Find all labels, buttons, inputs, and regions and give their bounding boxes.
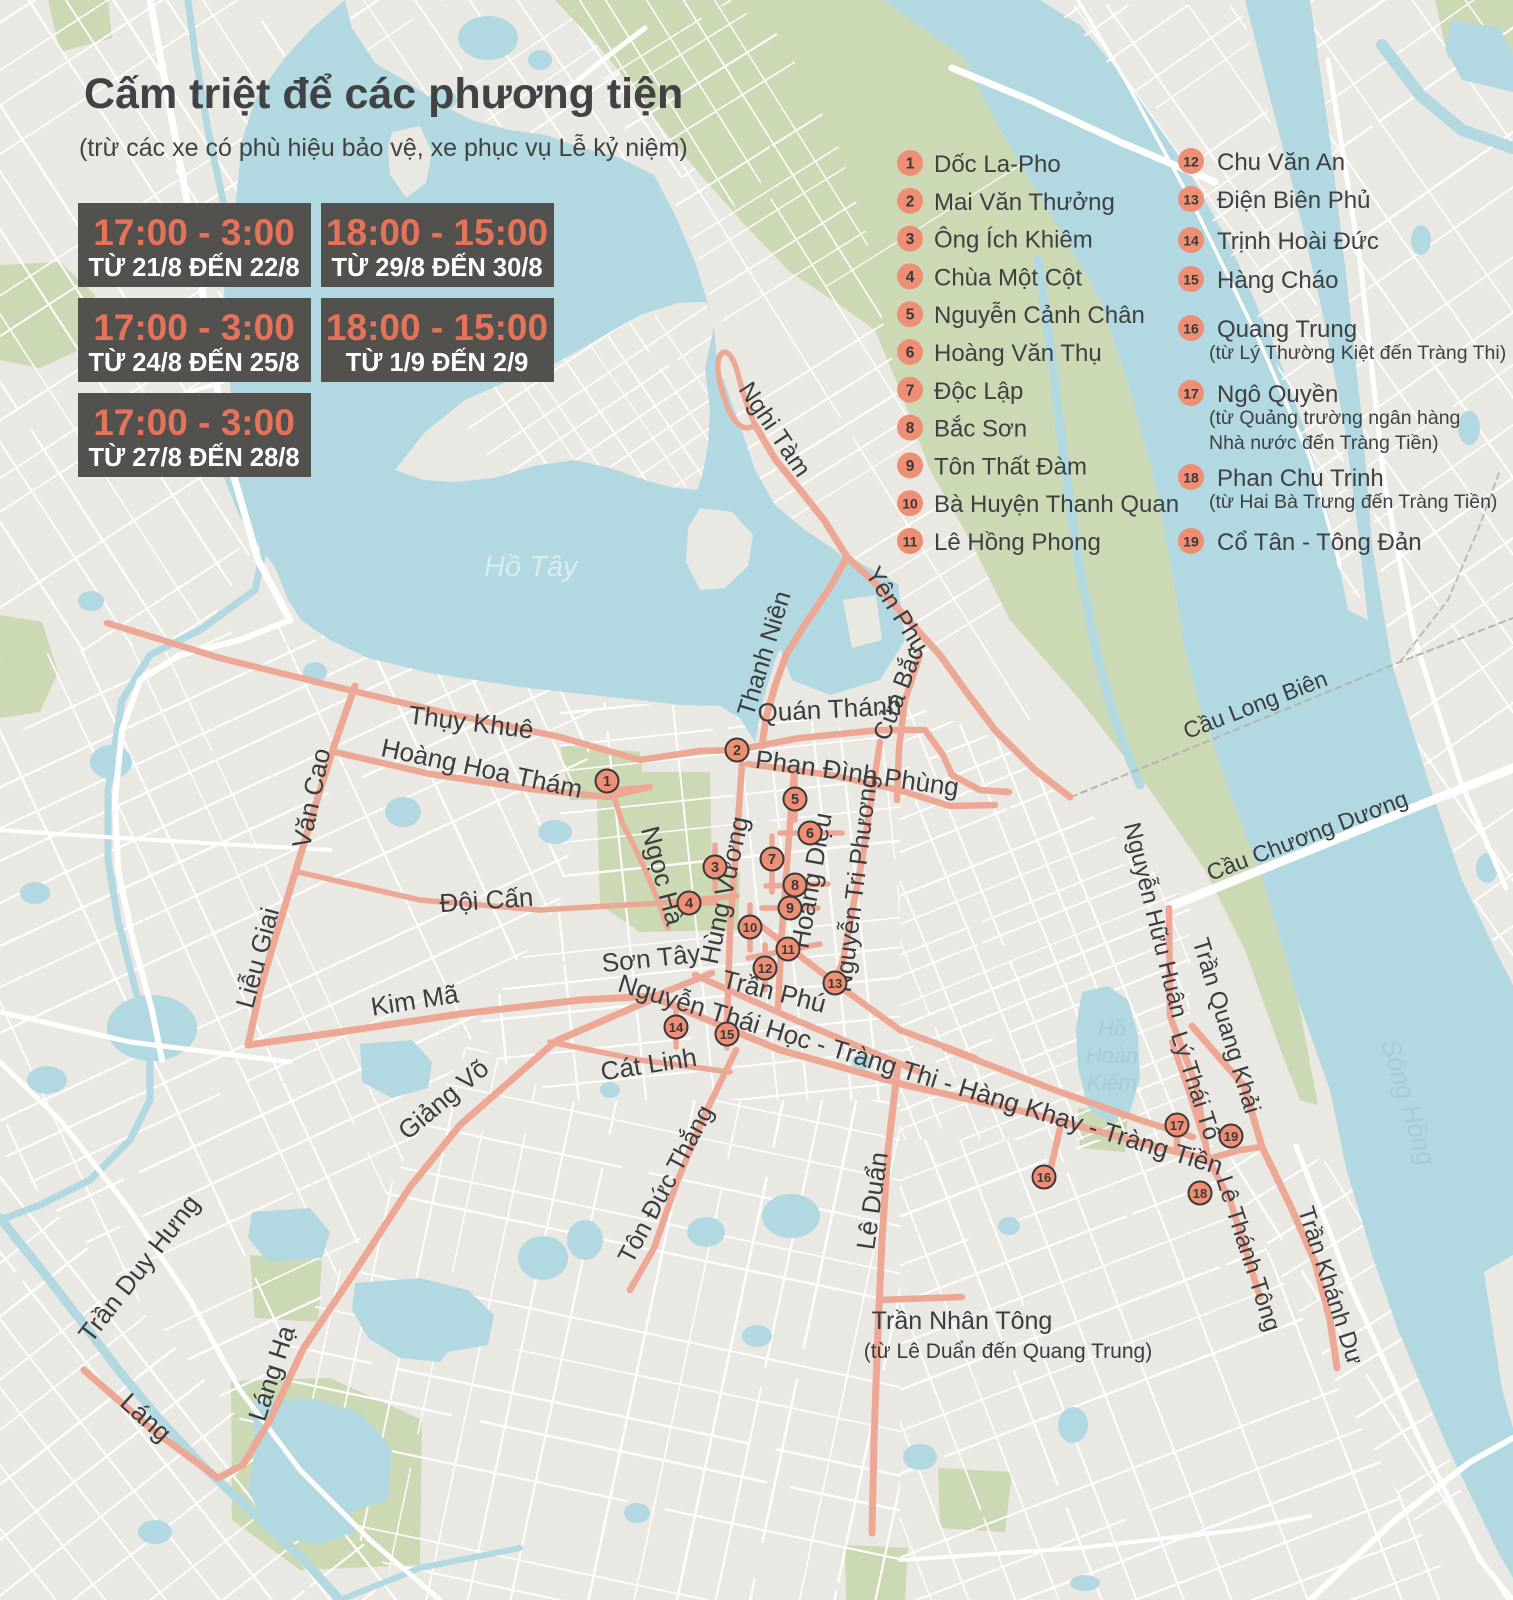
svg-text:Chu Văn An: Chu Văn An <box>1217 149 1345 176</box>
svg-text:TỪ 24/8 ĐẾN 25/8: TỪ 24/8 ĐẾN 25/8 <box>88 347 299 377</box>
svg-text:10: 10 <box>743 920 757 935</box>
svg-text:1: 1 <box>603 774 611 790</box>
svg-text:13: 13 <box>828 976 842 991</box>
svg-text:17: 17 <box>1183 386 1199 402</box>
svg-text:Hoàng Văn Thụ: Hoàng Văn Thụ <box>934 340 1102 367</box>
svg-text:11: 11 <box>781 942 795 957</box>
svg-text:16: 16 <box>1037 1170 1051 1185</box>
svg-text:Nhà nước đến Tràng Tiền): Nhà nước đến Tràng Tiền) <box>1209 432 1439 454</box>
svg-text:Trần Nhân Tông: Trần Nhân Tông <box>872 1307 1053 1335</box>
svg-text:17:00 - 3:00: 17:00 - 3:00 <box>93 402 295 443</box>
svg-text:15: 15 <box>1183 272 1199 288</box>
svg-text:Điện Biên Phủ: Điện Biên Phủ <box>1217 187 1370 214</box>
svg-text:1: 1 <box>906 156 915 173</box>
svg-text:TỪ 1/9 ĐẾN 2/9: TỪ 1/9 ĐẾN 2/9 <box>346 347 529 377</box>
svg-text:7: 7 <box>768 852 776 868</box>
svg-text:Độc Lập: Độc Lập <box>934 378 1023 405</box>
svg-text:Ngô Quyền: Ngô Quyền <box>1217 381 1338 408</box>
svg-text:7: 7 <box>906 382 915 399</box>
svg-text:8: 8 <box>791 878 799 894</box>
svg-text:4: 4 <box>685 896 693 912</box>
svg-text:Hoàn: Hoàn <box>1086 1043 1139 1068</box>
svg-text:Kiếm: Kiếm <box>1087 1070 1137 1095</box>
svg-text:18:00 - 15:00: 18:00 - 15:00 <box>326 212 548 253</box>
svg-text:(từ Hai Bà Trưng đến Tràng Tiề: (từ Hai Bà Trưng đến Tràng Tiền) <box>1209 491 1497 513</box>
svg-text:5: 5 <box>791 792 799 808</box>
svg-text:17: 17 <box>1170 1118 1184 1133</box>
svg-text:13: 13 <box>1183 192 1199 208</box>
svg-text:Bắc Sơn: Bắc Sơn <box>934 416 1027 443</box>
svg-text:Chùa Một Cột: Chùa Một Cột <box>934 264 1082 291</box>
svg-text:Ông Ích Khiêm: Ông Ích Khiêm <box>934 226 1093 254</box>
svg-text:(từ Lý Thường Kiệt đến Tràng T: (từ Lý Thường Kiệt đến Tràng Thi) <box>1209 342 1506 364</box>
svg-text:Bà Huyện Thanh Quan: Bà Huyện Thanh Quan <box>934 491 1179 518</box>
svg-text:Hồ Tây: Hồ Tây <box>484 551 579 583</box>
svg-text:Trịnh Hoài Đức: Trịnh Hoài Đức <box>1217 228 1379 255</box>
svg-text:14: 14 <box>1183 233 1199 249</box>
svg-text:TỪ 27/8 ĐẾN 28/8: TỪ 27/8 ĐẾN 28/8 <box>88 442 299 472</box>
svg-text:12: 12 <box>758 961 772 976</box>
svg-text:Phan Chu Trinh: Phan Chu Trinh <box>1217 465 1384 492</box>
svg-text:Hàng Cháo: Hàng Cháo <box>1217 267 1338 294</box>
svg-text:Cấm triệt để các phương tiện: Cấm triệt để các phương tiện <box>84 70 683 118</box>
svg-text:9: 9 <box>786 901 794 917</box>
svg-text:2: 2 <box>906 193 915 210</box>
svg-text:18: 18 <box>1183 470 1199 486</box>
svg-text:11: 11 <box>903 534 918 550</box>
svg-text:(trừ các xe có phù hiệu bảo vệ: (trừ các xe có phù hiệu bảo vệ, xe phục … <box>79 133 688 162</box>
svg-text:18:00 - 15:00: 18:00 - 15:00 <box>326 307 548 348</box>
svg-text:16: 16 <box>1183 321 1199 337</box>
svg-text:(từ Quảng trường ngân hàng: (từ Quảng trường ngân hàng <box>1209 407 1460 429</box>
svg-text:17:00 - 3:00: 17:00 - 3:00 <box>93 307 295 348</box>
svg-text:6: 6 <box>806 826 814 842</box>
svg-text:Nguyễn Cảnh Chân: Nguyễn Cảnh Chân <box>934 302 1145 329</box>
svg-text:Dốc La-Pho: Dốc La-Pho <box>934 151 1061 178</box>
svg-text:(từ Lê Duẩn đến Quang Trung): (từ Lê Duẩn đến Quang Trung) <box>864 1340 1152 1363</box>
svg-text:Hồ: Hồ <box>1098 1016 1126 1041</box>
svg-text:Tôn Thất Đàm: Tôn Thất Đàm <box>934 453 1087 480</box>
svg-text:19: 19 <box>1183 534 1199 550</box>
svg-text:Cổ Tân - Tông Đản: Cổ Tân - Tông Đản <box>1217 529 1422 556</box>
svg-text:Mai Văn Thưởng: Mai Văn Thưởng <box>934 189 1115 216</box>
svg-text:10: 10 <box>902 496 918 512</box>
svg-text:12: 12 <box>1183 154 1199 170</box>
svg-text:14: 14 <box>669 1020 684 1035</box>
svg-text:Quang Trung: Quang Trung <box>1217 316 1357 343</box>
svg-text:6: 6 <box>906 345 915 362</box>
svg-text:8: 8 <box>906 420 915 437</box>
svg-text:17:00 - 3:00: 17:00 - 3:00 <box>93 212 295 253</box>
svg-text:Lê Hồng Phong: Lê Hồng Phong <box>934 529 1101 556</box>
svg-text:5: 5 <box>906 307 915 324</box>
svg-text:15: 15 <box>720 1027 734 1042</box>
svg-text:2: 2 <box>733 743 741 759</box>
svg-text:9: 9 <box>906 458 915 475</box>
svg-text:4: 4 <box>906 269 915 286</box>
svg-text:TỪ 29/8 ĐẾN 30/8: TỪ 29/8 ĐẾN 30/8 <box>331 252 542 282</box>
svg-text:18: 18 <box>1193 1186 1207 1201</box>
svg-text:3: 3 <box>906 231 915 248</box>
svg-text:19: 19 <box>1224 1129 1238 1144</box>
svg-text:TỪ 21/8 ĐẾN 22/8: TỪ 21/8 ĐẾN 22/8 <box>88 252 299 282</box>
svg-text:3: 3 <box>711 860 719 876</box>
